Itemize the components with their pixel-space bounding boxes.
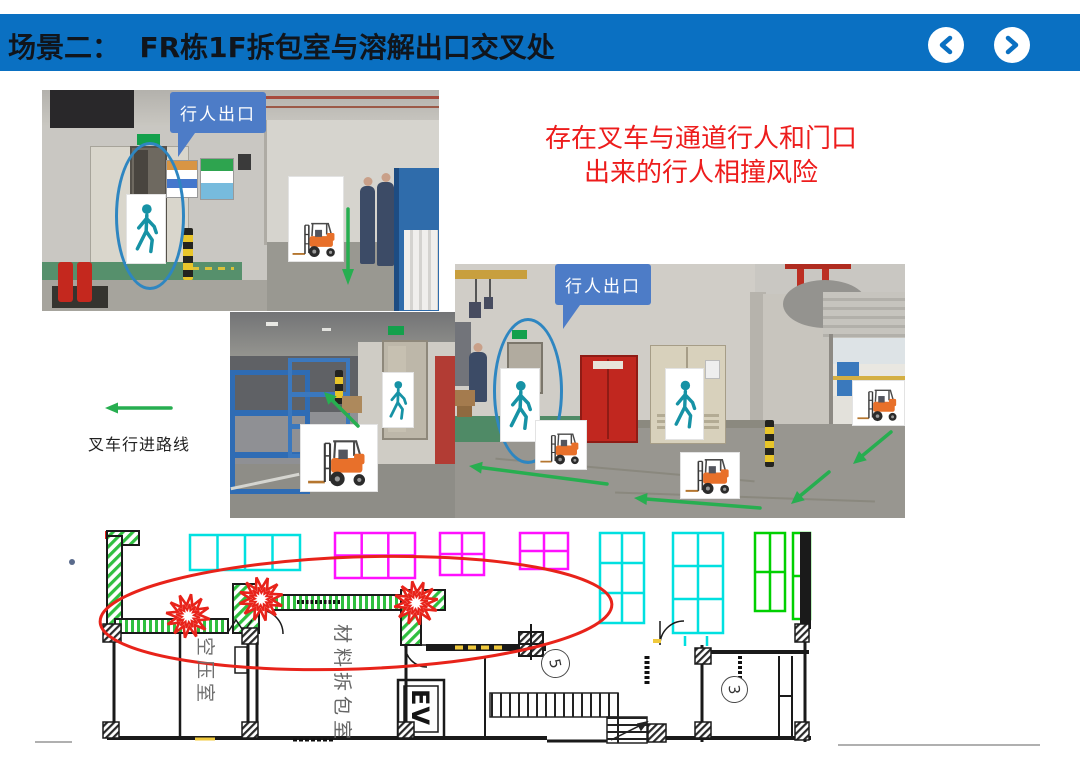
cardboard-box	[457, 406, 472, 417]
forklift-icon	[291, 219, 341, 259]
outside-sky	[833, 338, 905, 364]
callout-tail	[178, 133, 195, 157]
cardboard-box	[455, 390, 475, 406]
callout-tail	[563, 305, 580, 329]
bollard	[183, 228, 193, 280]
crane-hoist	[469, 302, 481, 318]
ceiling-light	[322, 328, 331, 331]
prev-button[interactable]	[928, 27, 964, 63]
cabinet-seam	[607, 359, 609, 439]
exit-callout-1: 行人出口	[170, 92, 266, 133]
cabinet-label	[593, 361, 623, 369]
door-sign	[705, 360, 720, 379]
forklift-card	[852, 380, 905, 426]
crane-beam	[455, 270, 527, 279]
route-arrow-icon	[785, 468, 837, 512]
page-title: 场景二： FR栋1F拆包室与溶解出口交叉处	[8, 26, 555, 66]
exit-callout-label: 行人出口	[555, 264, 651, 305]
next-button[interactable]	[994, 27, 1030, 63]
exit-sign-icon	[388, 326, 404, 335]
cyan-tall-grids	[600, 533, 723, 646]
bollard	[765, 420, 774, 467]
pedestrian-card	[665, 368, 704, 440]
wall-corner	[264, 120, 267, 245]
divider-line	[35, 741, 72, 743]
photo-warehouse-aisle	[230, 312, 455, 518]
slide: 场景二： FR栋1F拆包室与溶解出口交叉处 存在叉车与通道行人和门口 出来的行人…	[0, 0, 1080, 773]
wall-poster	[200, 158, 234, 200]
bullet-point	[69, 559, 75, 565]
fire-extinguisher	[58, 262, 73, 302]
legend-arrow-icon	[103, 400, 175, 416]
ceiling-pipe	[257, 106, 439, 108]
risk-line-1: 存在叉车与通道行人和门口	[505, 122, 897, 156]
floor-marking	[192, 267, 234, 270]
chevron-right-icon	[1003, 35, 1021, 55]
room-label-compressor: 空压室	[193, 637, 220, 706]
divider-line	[838, 744, 1040, 746]
plan-markings	[195, 602, 740, 740]
route-arrow-icon	[847, 428, 899, 472]
route-arrow-icon	[630, 490, 766, 514]
walking-person-icon	[130, 198, 162, 259]
forklift-icon	[856, 386, 902, 423]
roller-shutter	[823, 292, 905, 340]
ceiling-unit	[50, 90, 134, 128]
forklift-card	[288, 176, 344, 262]
risk-line-2: 出来的行人相撞风险	[505, 156, 897, 190]
room-label-unpacking: 材料拆包室	[330, 624, 357, 744]
worker	[360, 186, 375, 264]
title-bar: 场景二： FR栋1F拆包室与溶解出口交叉处	[0, 14, 1080, 71]
chevron-left-icon	[937, 35, 955, 55]
walking-person-icon	[669, 373, 700, 436]
stairs	[490, 693, 647, 743]
red-pipe	[785, 264, 851, 269]
forklift-icon	[306, 435, 373, 489]
worker	[377, 182, 394, 266]
exit-callout-label: 行人出口	[170, 92, 266, 133]
photo-dissolution-exit: 行人出口	[455, 264, 905, 518]
elevator-label: EV	[406, 689, 434, 726]
legend-label: 叉车行进路线	[88, 431, 190, 455]
pedestrian-card	[500, 368, 540, 442]
route-arrow-icon	[316, 386, 362, 430]
forklift-card	[300, 424, 378, 492]
door-jamb	[829, 334, 833, 438]
material-rolls	[404, 230, 438, 310]
exit-callout-2: 行人出口	[555, 264, 651, 305]
crane-hoist	[484, 297, 493, 309]
risk-warning-text: 存在叉车与通道行人和门口 出来的行人相撞风险	[505, 122, 897, 191]
photo-pedestrian-exit-1: 行人出口	[42, 90, 439, 311]
ceiling-light	[266, 322, 278, 326]
pedestrian-card	[126, 194, 166, 264]
route-arrow-icon	[463, 454, 615, 496]
route-arrow-icon	[340, 206, 356, 288]
walking-person-icon	[504, 373, 536, 438]
fire-extinguisher	[77, 262, 92, 302]
camera	[238, 154, 251, 170]
walking-person-icon	[385, 376, 411, 425]
crane-chain	[489, 279, 491, 299]
pedestrian-card	[382, 372, 414, 428]
